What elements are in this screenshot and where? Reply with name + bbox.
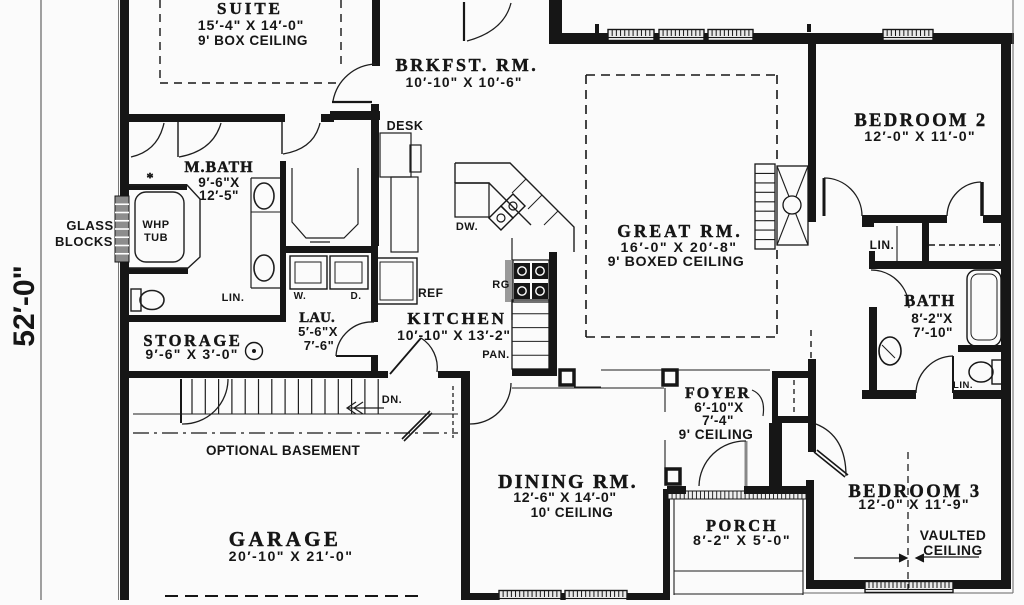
svg-text:5′-6"X: 5′-6"X (298, 324, 338, 339)
svg-text:12′-5": 12′-5" (199, 188, 239, 203)
svg-text:BATH: BATH (904, 291, 956, 310)
svg-text:OPTIONAL BASEMENT: OPTIONAL BASEMENT (206, 443, 361, 458)
svg-text:BRKFST. RM.: BRKFST. RM. (396, 55, 539, 75)
svg-text:20′-10" X 21′-0": 20′-10" X 21′-0" (229, 549, 354, 565)
svg-text:10' CEILING: 10' CEILING (531, 505, 614, 520)
svg-text:52′-0": 52′-0" (8, 265, 41, 346)
svg-text:*: * (147, 171, 154, 186)
svg-text:15′-4" X 14′-0": 15′-4" X 14′-0" (198, 18, 304, 34)
svg-text:RG: RG (492, 279, 510, 291)
svg-text:VAULTED: VAULTED (920, 528, 987, 543)
svg-text:12′-0" X 11′-9": 12′-0" X 11′-9" (858, 497, 970, 513)
svg-text:8′-2" X 5′-0": 8′-2" X 5′-0" (693, 533, 791, 549)
svg-text:9′-6" X 3′-0": 9′-6" X 3′-0" (145, 346, 238, 362)
svg-text:D.: D. (351, 291, 362, 302)
svg-text:PAN.: PAN. (482, 349, 509, 361)
svg-text:TUB: TUB (144, 232, 168, 244)
svg-text:9' BOX CEILING: 9' BOX CEILING (198, 33, 308, 48)
svg-text:DESK: DESK (387, 119, 424, 133)
svg-text:7′-6": 7′-6" (304, 338, 335, 353)
svg-text:DW.: DW. (456, 221, 478, 233)
svg-text:LIN.: LIN. (870, 238, 895, 252)
svg-text:7′-10": 7′-10" (913, 325, 953, 340)
svg-text:CEILING: CEILING (923, 543, 982, 558)
svg-text:12′-6" X 14′-0": 12′-6" X 14′-0" (513, 490, 616, 506)
svg-text:9' CEILING: 9' CEILING (679, 427, 754, 442)
svg-text:GREAT RM.: GREAT RM. (617, 221, 743, 241)
svg-text:KITCHEN: KITCHEN (407, 309, 506, 328)
svg-text:8′-2"X: 8′-2"X (911, 311, 952, 326)
svg-text:LIN.: LIN. (222, 292, 245, 304)
svg-text:12′-0" X 11′-0": 12′-0" X 11′-0" (864, 129, 976, 145)
svg-text:LIN.: LIN. (953, 380, 973, 391)
svg-text:SUITE: SUITE (217, 0, 283, 18)
svg-text:7′-4": 7′-4" (702, 413, 734, 428)
svg-text:WHP: WHP (142, 219, 169, 231)
svg-text:REF: REF (418, 286, 444, 300)
svg-text:BEDROOM 2: BEDROOM 2 (854, 111, 987, 131)
svg-text:W.: W. (294, 291, 307, 302)
svg-text:9' BOXED CEILING: 9' BOXED CEILING (608, 254, 745, 270)
svg-text:GLASS: GLASS (66, 218, 113, 233)
svg-text:10′-10" X 10′-6": 10′-10" X 10′-6" (405, 75, 522, 90)
svg-text:DN.: DN. (382, 394, 402, 406)
svg-text:BLOCKS: BLOCKS (55, 234, 113, 249)
svg-text:10′-10" X 13′-2": 10′-10" X 13′-2" (397, 327, 511, 343)
svg-text:M.BATH: M.BATH (184, 159, 253, 176)
svg-text:GARAGE: GARAGE (229, 527, 342, 551)
